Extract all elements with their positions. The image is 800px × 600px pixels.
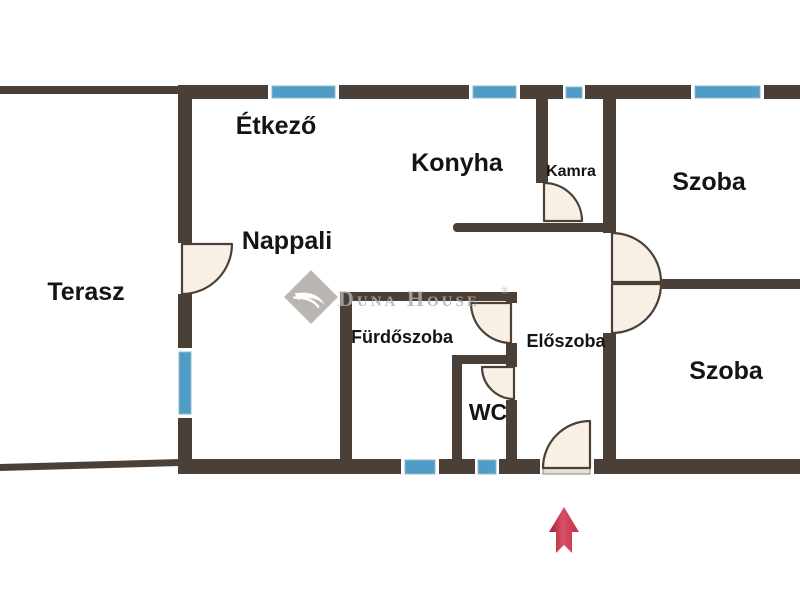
wall-bottom-seg2 <box>437 459 477 474</box>
room-label-terasz: Terasz <box>47 278 124 306</box>
watermark-diamond-logo-icon <box>284 270 338 324</box>
room-label-konyha: Konyha <box>411 149 504 177</box>
wall-wc-left <box>452 355 462 459</box>
room-label-eloszoba: Előszoba <box>526 331 606 351</box>
wall-rooms-left-seg1 <box>603 93 616 233</box>
wall-rooms-left-seg2 <box>603 333 616 459</box>
watermark-registered-mark: ® <box>501 286 509 297</box>
window-etkezo <box>268 84 339 100</box>
door-szoba-top <box>612 233 661 282</box>
wall-top-seg4 <box>583 85 693 99</box>
wall-szoba-divider <box>661 279 800 289</box>
wall-bottom-seg3 <box>497 459 540 474</box>
door-entrance <box>540 421 594 476</box>
wall-furdo-right-seg3 <box>506 400 517 459</box>
door-szoba-bottom <box>612 284 661 333</box>
room-label-furdoszoba: Fürdőszoba <box>351 327 454 347</box>
door-kamra <box>544 183 582 221</box>
window-kamra <box>563 85 585 100</box>
window-bottom-furdo <box>401 458 439 476</box>
wall-terasz-top <box>0 86 186 94</box>
room-label-wc: WC <box>469 399 507 425</box>
room-label-szoba-top: Szoba <box>672 168 747 196</box>
wall-kitchen-bottom <box>453 223 612 232</box>
wall-top-seg5 <box>762 85 800 99</box>
door-terasz-nappali <box>182 244 232 294</box>
wall-bottom-seg4 <box>592 459 800 474</box>
window-szoba-top <box>691 84 764 100</box>
entrance-arrow-icon <box>549 507 579 553</box>
room-label-etkezo: Étkező <box>236 111 317 140</box>
floor-plan: Étkező Konyha Kamra Szoba Nappali Terasz… <box>0 0 800 600</box>
wall-left-seg2 <box>178 294 192 351</box>
room-label-szoba-bottom: Szoba <box>689 357 764 385</box>
wall-top-seg2 <box>337 85 471 99</box>
room-label-kamra: Kamra <box>546 163 596 180</box>
wall-bottom-seg1 <box>178 459 403 474</box>
floor-plan-drawing: Étkező Konyha Kamra Szoba Nappali Terasz… <box>0 0 800 600</box>
wall-furdo-left <box>340 292 352 459</box>
window-bottom-wc <box>475 458 499 476</box>
wall-left-seg1 <box>178 85 192 243</box>
door-wc <box>482 367 514 399</box>
window-terasz-wall <box>177 348 193 418</box>
window-konyha <box>469 84 520 100</box>
wall-terasz-bottom <box>0 459 180 471</box>
watermark-brand-text: Duna House <box>338 286 480 311</box>
room-label-nappali: Nappali <box>242 227 332 255</box>
